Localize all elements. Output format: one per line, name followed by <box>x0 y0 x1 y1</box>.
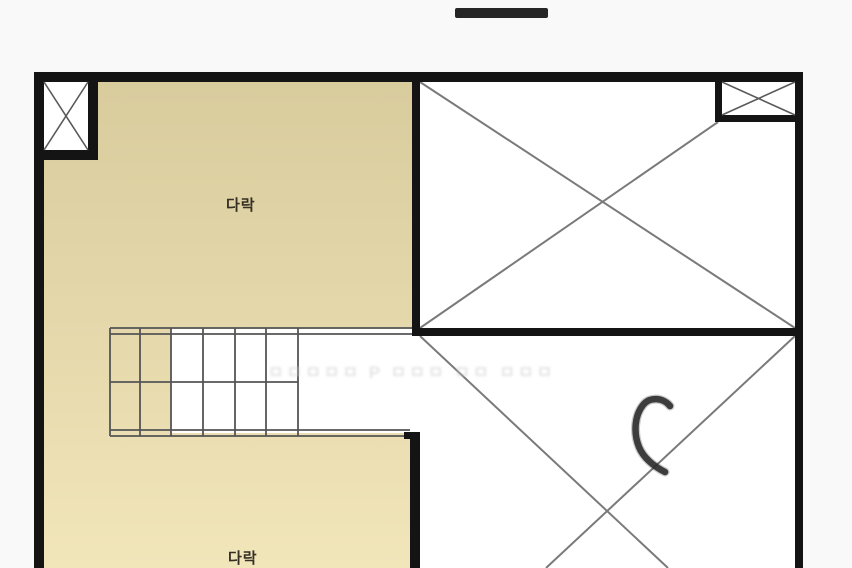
attic-label-upper: 다락 <box>226 194 256 215</box>
screenshot-root: 다락 다락 ㅁㅁㅁㅁㅁ P ㅁㅁㅁ ㅁㅁ ㅁㅁㅁ <box>0 0 852 568</box>
attic-label-lower: 다락 <box>228 547 258 568</box>
attic-room-lower <box>44 433 410 568</box>
interior-wall-lower <box>410 432 420 568</box>
floor-plan: 다락 다락 ㅁㅁㅁㅁㅁ P ㅁㅁㅁ ㅁㅁ ㅁㅁㅁ <box>0 0 852 568</box>
attic-stair-strip <box>44 329 171 433</box>
interior-wall-vertical <box>412 72 420 336</box>
wall-right <box>795 72 803 568</box>
floor-plan-drawing <box>0 0 852 568</box>
interior-wall-horizontal <box>412 328 803 336</box>
attic-area <box>44 82 413 568</box>
